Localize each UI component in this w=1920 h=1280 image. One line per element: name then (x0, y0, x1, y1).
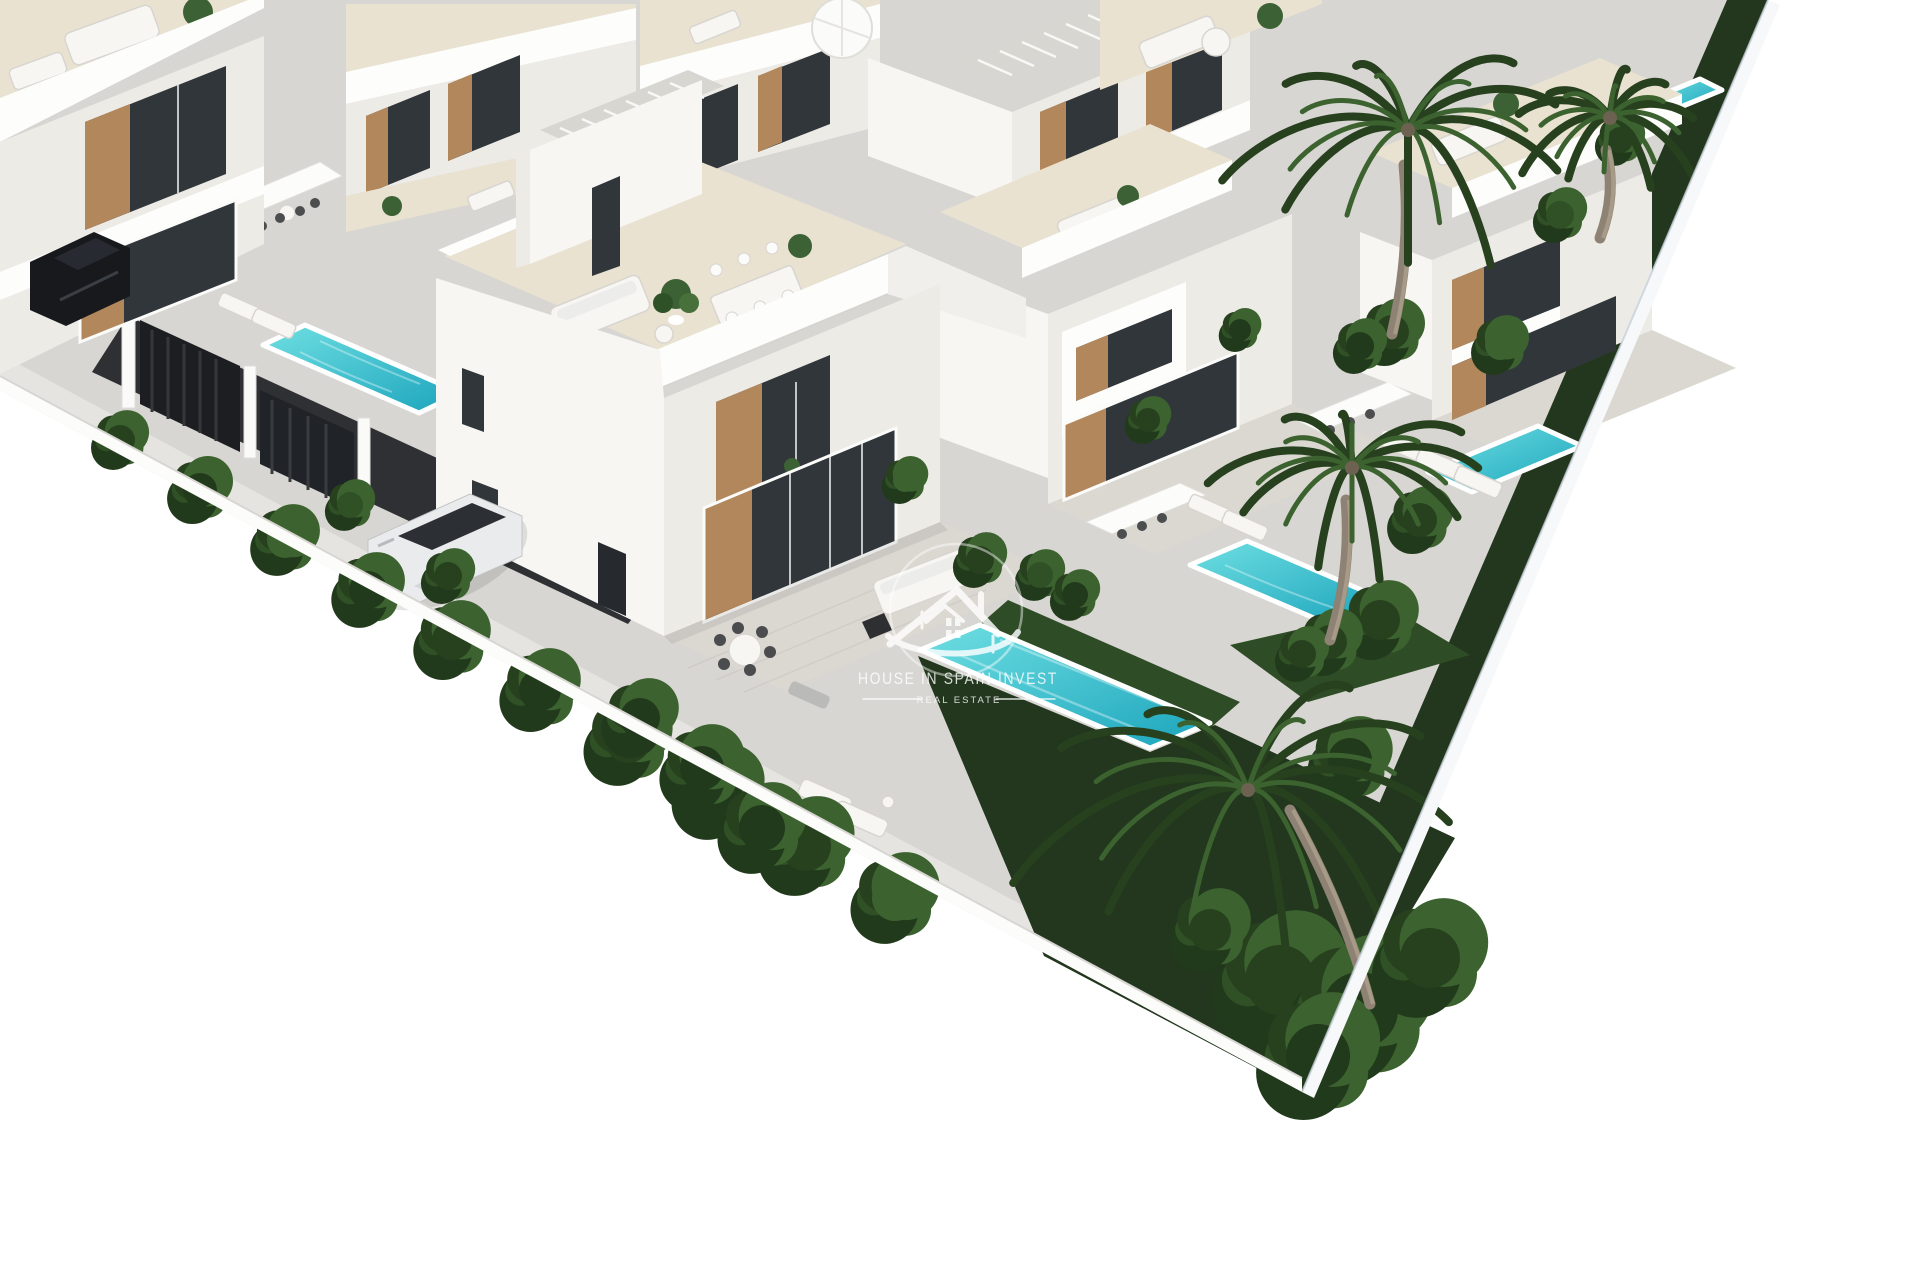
terrace-door (592, 176, 620, 276)
render-canvas: HOUSE IN SPAIN INVEST REAL ESTATE (0, 0, 1920, 1280)
potted-plant (382, 196, 402, 216)
watermark-title: HOUSE IN SPAIN INVEST (858, 669, 1058, 688)
potted-plant (1257, 3, 1283, 29)
round-dining-table (729, 634, 761, 666)
aerial-render-image: HOUSE IN SPAIN INVEST REAL ESTATE (0, 0, 1920, 1280)
watermark-subtitle: REAL ESTATE (917, 695, 1002, 706)
side-table (882, 796, 894, 808)
entrance-door (598, 542, 626, 616)
patio-table (1202, 28, 1230, 56)
